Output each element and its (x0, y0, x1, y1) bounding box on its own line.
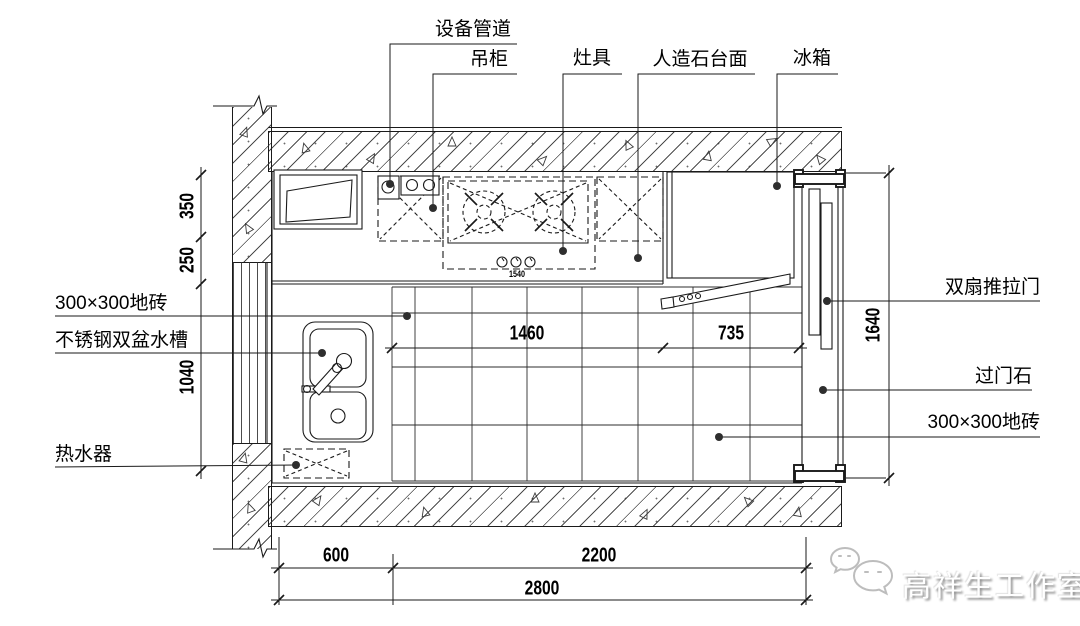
callout-wall-cabinet: 吊柜 (470, 50, 508, 70)
wechat-bubbles-icon (828, 545, 902, 603)
wall-break-bottom (213, 539, 277, 557)
dim-250: 250 (177, 247, 200, 273)
callout-steel-sink: 不锈钢双盆水槽 (55, 331, 188, 351)
watermark: 高祥生工作室 (828, 545, 1073, 615)
dim-1640: 1640 (863, 308, 886, 343)
callout-floor-tile-left: 300×300地砖 (55, 294, 168, 314)
wall-break-top (213, 96, 277, 114)
callout-sliding-door: 双扇推拉门 (945, 278, 1040, 298)
dim-350: 350 (177, 193, 200, 219)
stove (443, 177, 595, 269)
window (274, 170, 362, 229)
double-basin-sink (302, 322, 373, 442)
dim-600: 600 (323, 545, 349, 568)
callout-stove: 灶具 (573, 49, 611, 69)
callout-fridge: 冰箱 (793, 49, 831, 69)
fridge-door (661, 274, 790, 309)
dim-735: 735 (718, 323, 744, 346)
callout-equipment-pipe: 设备管道 (435, 20, 511, 40)
door-jamb-bottom (795, 471, 844, 481)
sliding-door-assembly (794, 170, 845, 482)
leader-lines (55, 44, 1040, 469)
wall-cabinet-box (597, 177, 663, 241)
callout-threshold-stone: 过门石 (975, 367, 1032, 387)
dim-1040: 1040 (177, 360, 200, 395)
floor-plan-canvas: 设备管道 吊柜 灶具 人造石台面 冰箱 300×300地砖 不锈钢双盆水槽 热水… (0, 0, 1080, 626)
dim-stove-width: 1540 (509, 269, 525, 279)
dim-2800: 2800 (525, 578, 560, 601)
callout-floor-tile-right: 300×300地砖 (928, 413, 1041, 433)
watermark-studio-name: 高祥生工作室 (902, 563, 1080, 605)
callout-stone-countertop: 人造石台面 (652, 50, 747, 70)
callout-water-heater: 热水器 (55, 445, 112, 465)
floor-tile-grid (392, 287, 802, 481)
dim-1460: 1460 (510, 323, 545, 346)
door-panel-2 (821, 203, 832, 349)
door-jamb-top (795, 174, 844, 184)
door-panel-1 (809, 189, 820, 335)
dim-2200: 2200 (582, 545, 617, 568)
